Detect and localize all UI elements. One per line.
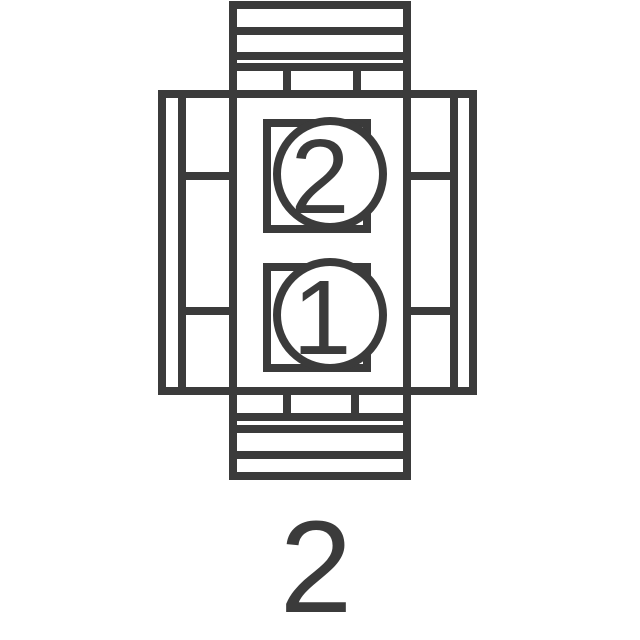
top-tab [233,31,407,94]
bottom-tab [233,391,407,455]
pin-2-marker: 2 [267,118,383,236]
pin-1-label: 1 [293,259,352,377]
connector-diagram: 2 1 2 [0,0,640,640]
center-column-outline [233,5,407,476]
left-flange [182,94,233,391]
housing [162,5,473,476]
position-count-label: 2 [280,493,353,640]
pin-2-label: 2 [291,118,350,236]
right-flange [407,94,454,391]
pin-1-marker: 1 [267,259,383,377]
drawing-page: 2 1 2 [0,0,640,640]
